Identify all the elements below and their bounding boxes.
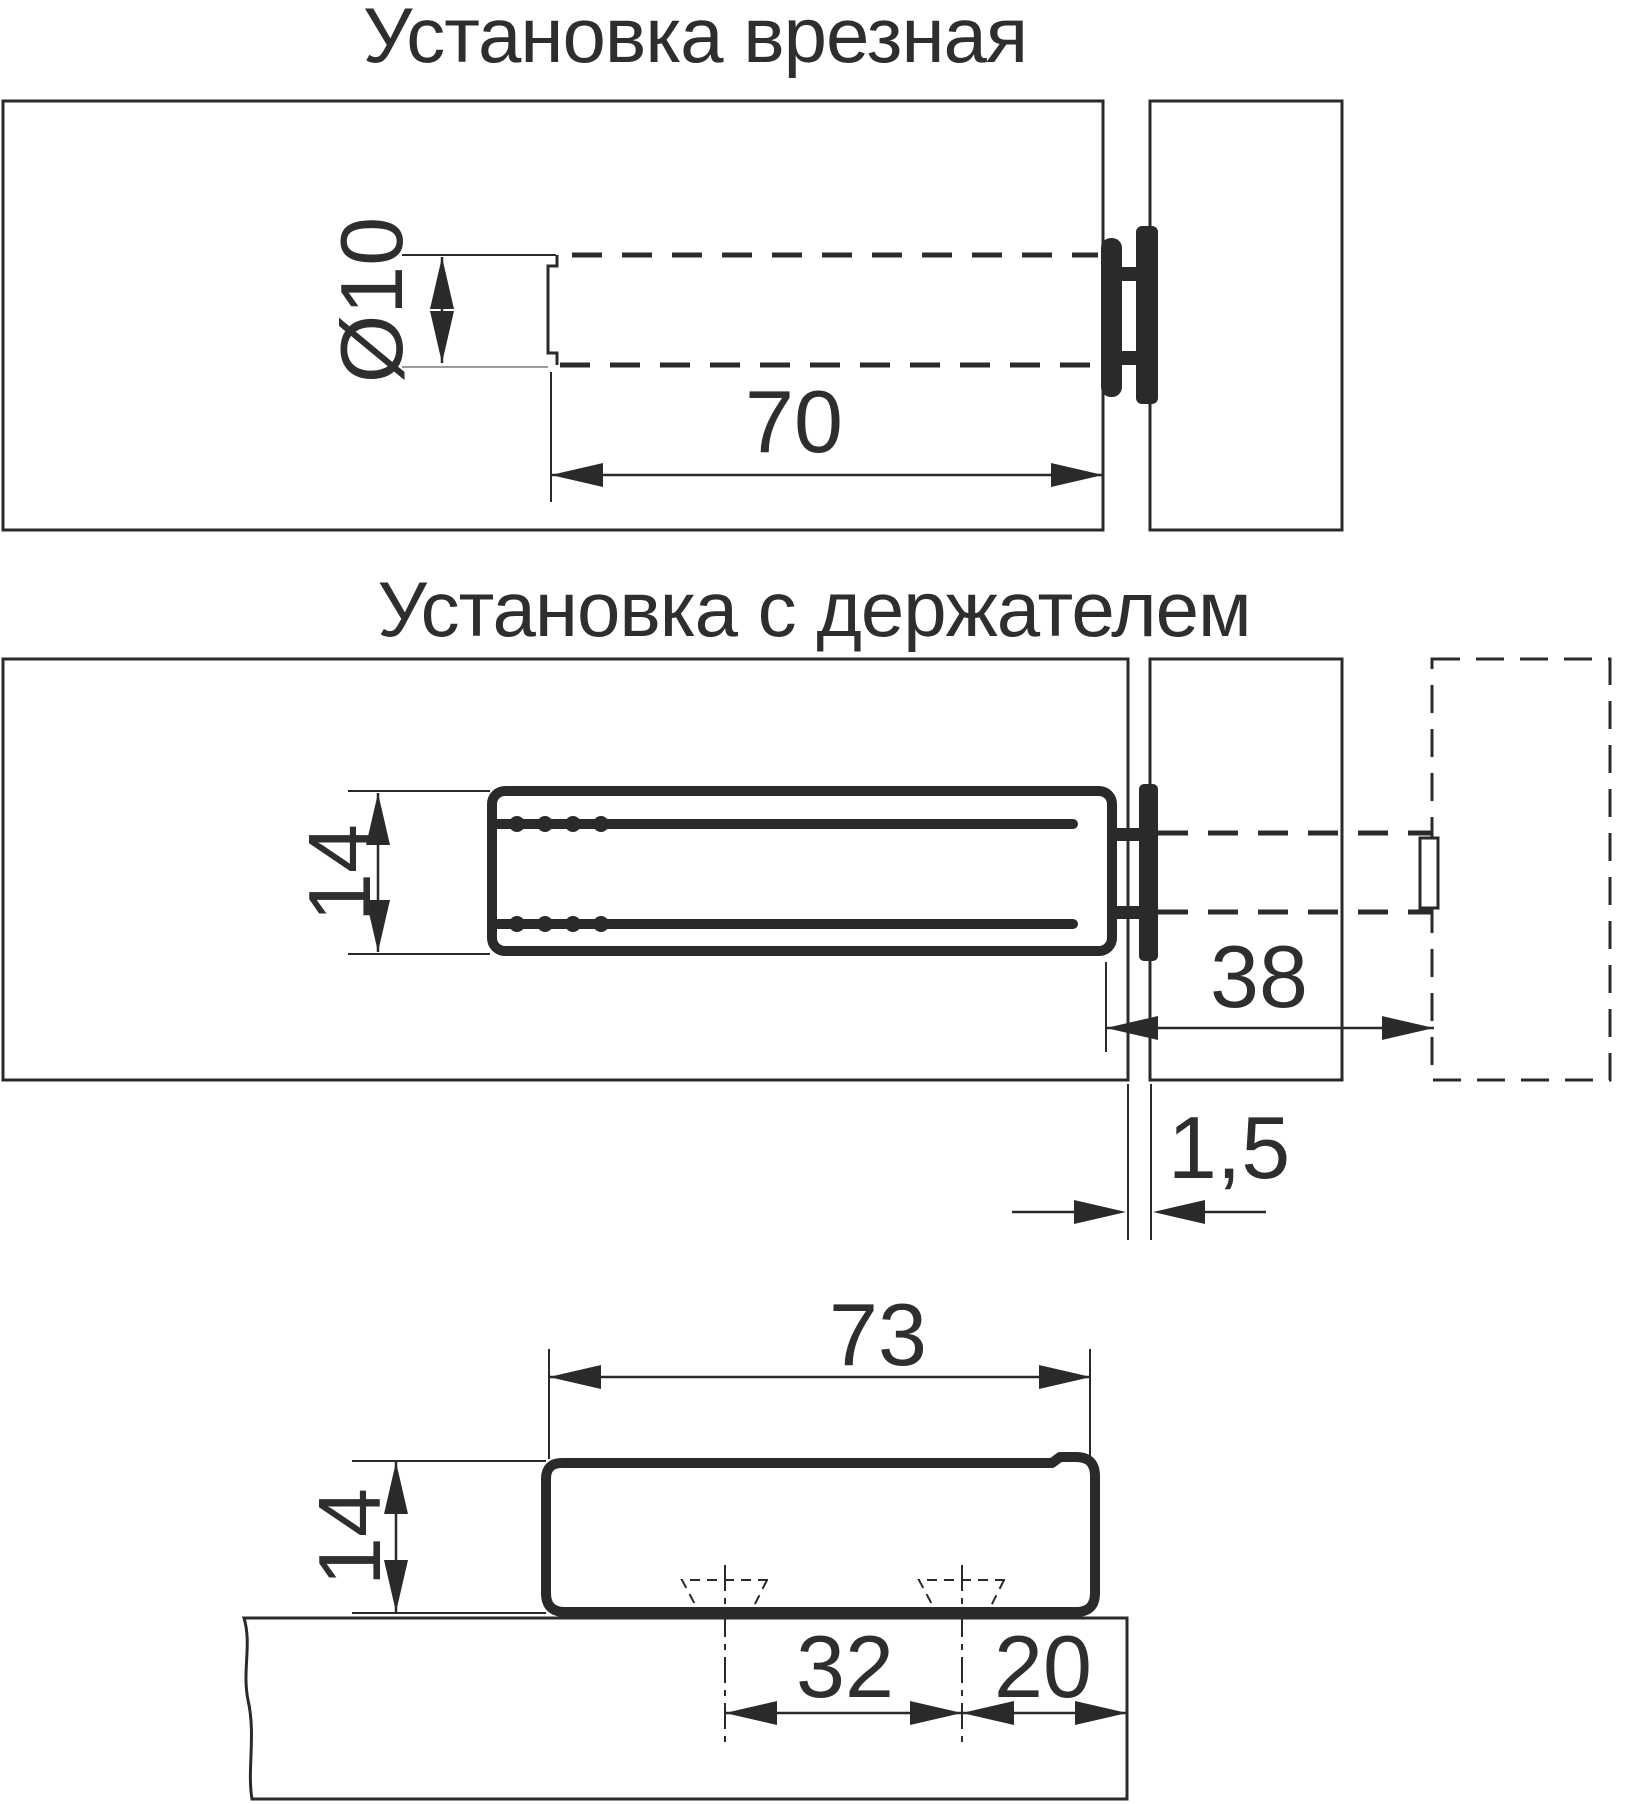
dim-door-gap: 1,5 xyxy=(1168,1098,1290,1197)
dim-opening-distance: 38 xyxy=(1210,927,1308,1026)
dimension-arrow-right xyxy=(910,1701,962,1725)
dimension-arrow-right xyxy=(1074,1200,1126,1224)
holder-body xyxy=(546,1457,1095,1612)
dimension-arrow-right xyxy=(1051,463,1103,487)
dimension-holder-length: 73 xyxy=(549,1285,1091,1459)
dimension-arrow-down xyxy=(430,311,454,363)
holder-clip-ribs xyxy=(509,816,609,932)
door-panel xyxy=(1150,101,1342,530)
cabinet-panel xyxy=(3,659,1128,1080)
dimension-arrow-left xyxy=(549,1365,601,1389)
holder-side-view: 73 14 32 20 xyxy=(244,1285,1127,1799)
holder-title: Установка с держателем xyxy=(377,565,1250,653)
dimension-holder-height: 14 xyxy=(300,1461,546,1613)
dimension-arrow-left xyxy=(551,463,603,487)
mortise-title: Установка врезная xyxy=(363,0,1027,79)
catch-plate-open-position xyxy=(1420,838,1438,908)
strike-plate xyxy=(1139,784,1158,961)
dim-edge-distance: 20 xyxy=(994,1617,1092,1716)
dim-screw-spacing: 32 xyxy=(796,1617,894,1716)
dimension-arrow-left xyxy=(1153,1200,1205,1224)
latch-head-cap xyxy=(1101,238,1122,397)
latch-plug-end xyxy=(548,255,557,365)
cabinet-panel xyxy=(3,101,1103,530)
plunger-bottom xyxy=(1112,906,1142,919)
dim-latch-height: 14 xyxy=(290,824,389,922)
dimension-arrow-right xyxy=(1382,1016,1434,1040)
mortise-installation-view: Установка врезная Ø10 70 xyxy=(3,0,1342,530)
dim-holder-height: 14 xyxy=(300,1488,399,1586)
dimension-door-gap: 1,5 xyxy=(1012,1084,1290,1240)
strike-plate xyxy=(1136,226,1158,404)
latch-head xyxy=(1101,226,1158,404)
dim-hole-diameter: Ø10 xyxy=(322,217,421,383)
door-open-position xyxy=(1432,659,1610,1080)
dimension-latch-height: 14 xyxy=(290,791,490,954)
dim-holder-length: 73 xyxy=(829,1285,927,1384)
technical-drawing: Установка врезная Ø10 70 xyxy=(0,0,1631,1804)
dimension-hole-depth: 70 xyxy=(551,372,1103,502)
dimension-hole-diameter: Ø10 xyxy=(322,217,556,383)
technical-drawing-page: Установка врезная Ø10 70 xyxy=(0,0,1631,1804)
dim-hole-depth: 70 xyxy=(745,372,843,471)
dimension-arrow-left xyxy=(1106,1016,1158,1040)
dimension-arrow-left xyxy=(725,1701,777,1725)
latch-body-with-holder xyxy=(492,784,1158,961)
dimension-edge-distance: 20 xyxy=(962,1617,1127,1725)
dimension-arrow-right xyxy=(1039,1365,1091,1389)
holder-installation-view: Установка с держателем xyxy=(3,565,1610,1240)
dimension-arrow-up xyxy=(430,257,454,309)
plunger-top xyxy=(1112,828,1142,841)
